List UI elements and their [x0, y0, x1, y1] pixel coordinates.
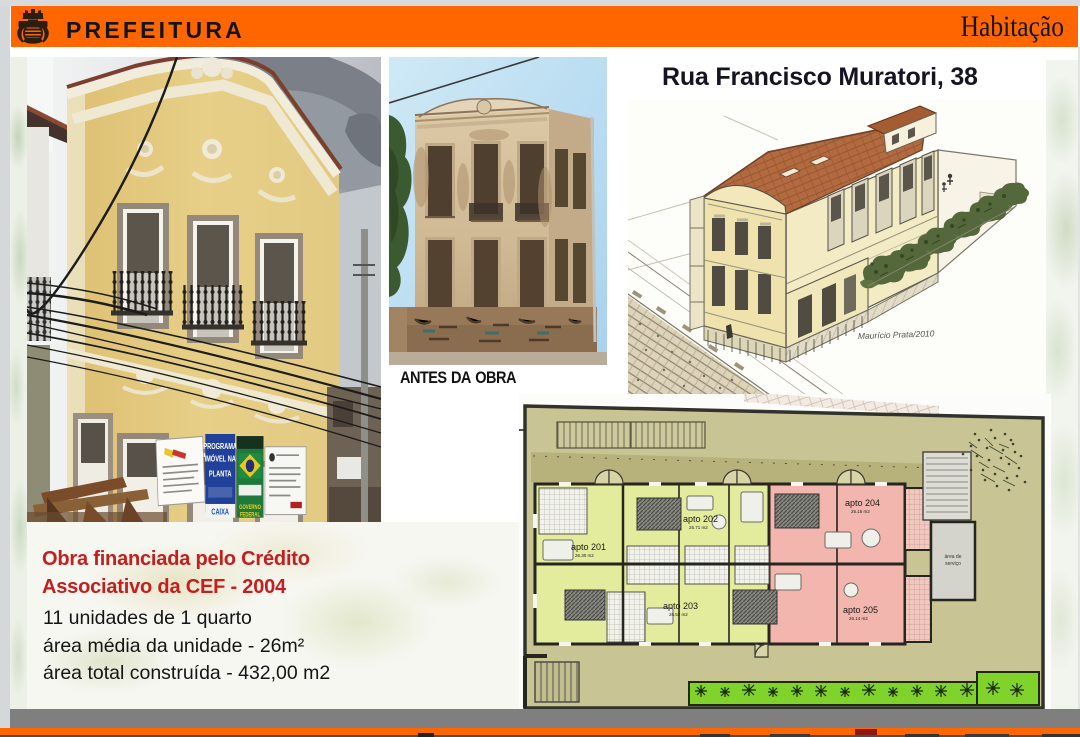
svg-text:PROGRAMA: PROGRAMA [203, 441, 237, 452]
svg-text:área de: área de [945, 554, 962, 560]
svg-text:26.71 m2: 26.71 m2 [689, 525, 708, 530]
svg-text:PLANTA: PLANTA [209, 468, 232, 479]
svg-text:25.15 m2: 25.15 m2 [851, 509, 870, 514]
svg-text:apto 205: apto 205 [843, 605, 878, 615]
svg-text:apto 202: apto 202 [683, 514, 718, 524]
svg-text:26.14 m2: 26.14 m2 [849, 616, 868, 621]
svg-text:apto 201: apto 201 [571, 542, 606, 552]
svg-text:apto 204: apto 204 [845, 498, 880, 508]
svg-text:serviço: serviço [945, 561, 961, 567]
svg-text:FEDERAL: FEDERAL [240, 512, 261, 519]
svg-text:26.30 m2: 26.30 m2 [575, 553, 594, 558]
svg-text:IMÓVEL NA: IMÓVEL NA [204, 453, 236, 464]
svg-text:apto 203: apto 203 [663, 601, 698, 611]
svg-text:CAIXA: CAIXA [211, 506, 229, 517]
svg-text:GOVERNO: GOVERNO [239, 505, 261, 512]
svg-text:26.52 m2: 26.52 m2 [669, 612, 688, 617]
